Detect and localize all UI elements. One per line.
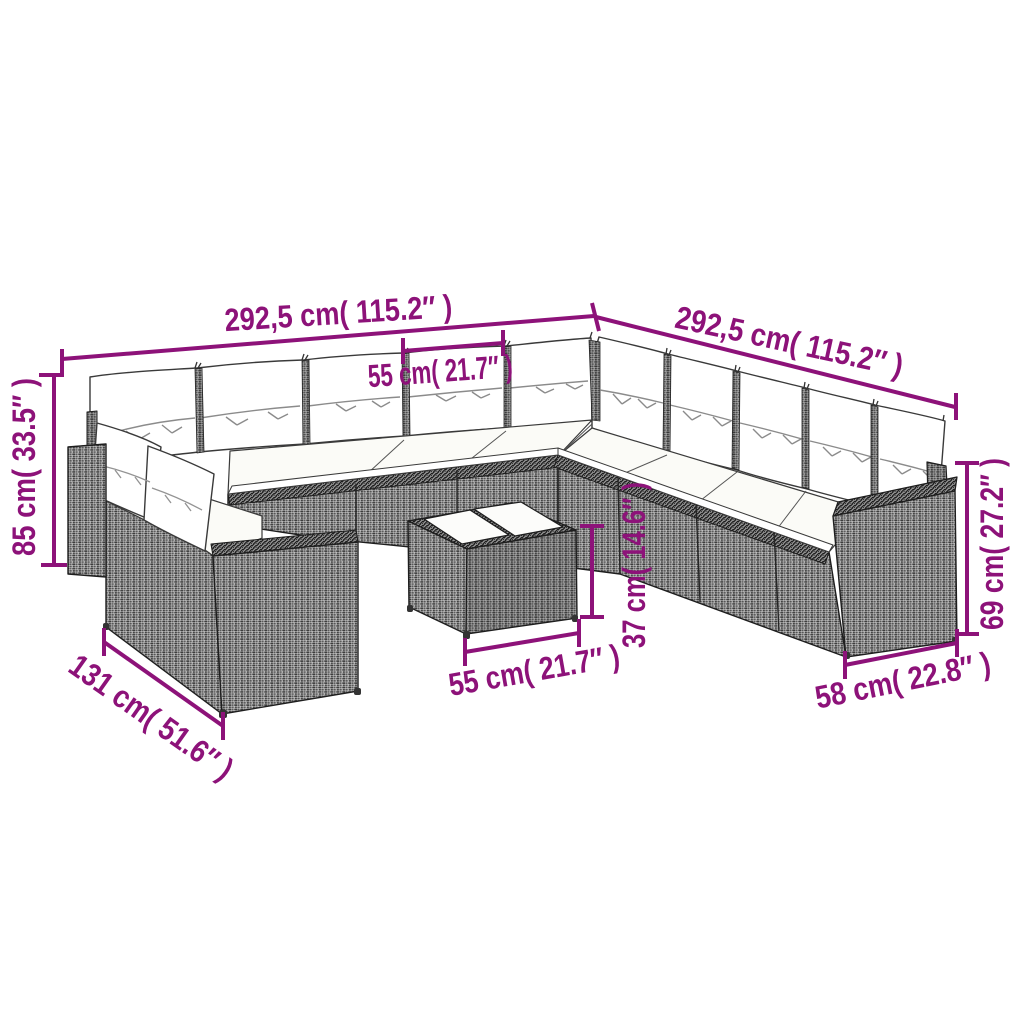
svg-text:69 cm( 27.2″ ): 69 cm( 27.2″ ) (974, 458, 1010, 630)
svg-text:37 cm( 14.6″ ): 37 cm( 14.6″ ) (616, 482, 652, 648)
svg-text:85 cm( 33.5″ ): 85 cm( 33.5″ ) (6, 378, 42, 556)
